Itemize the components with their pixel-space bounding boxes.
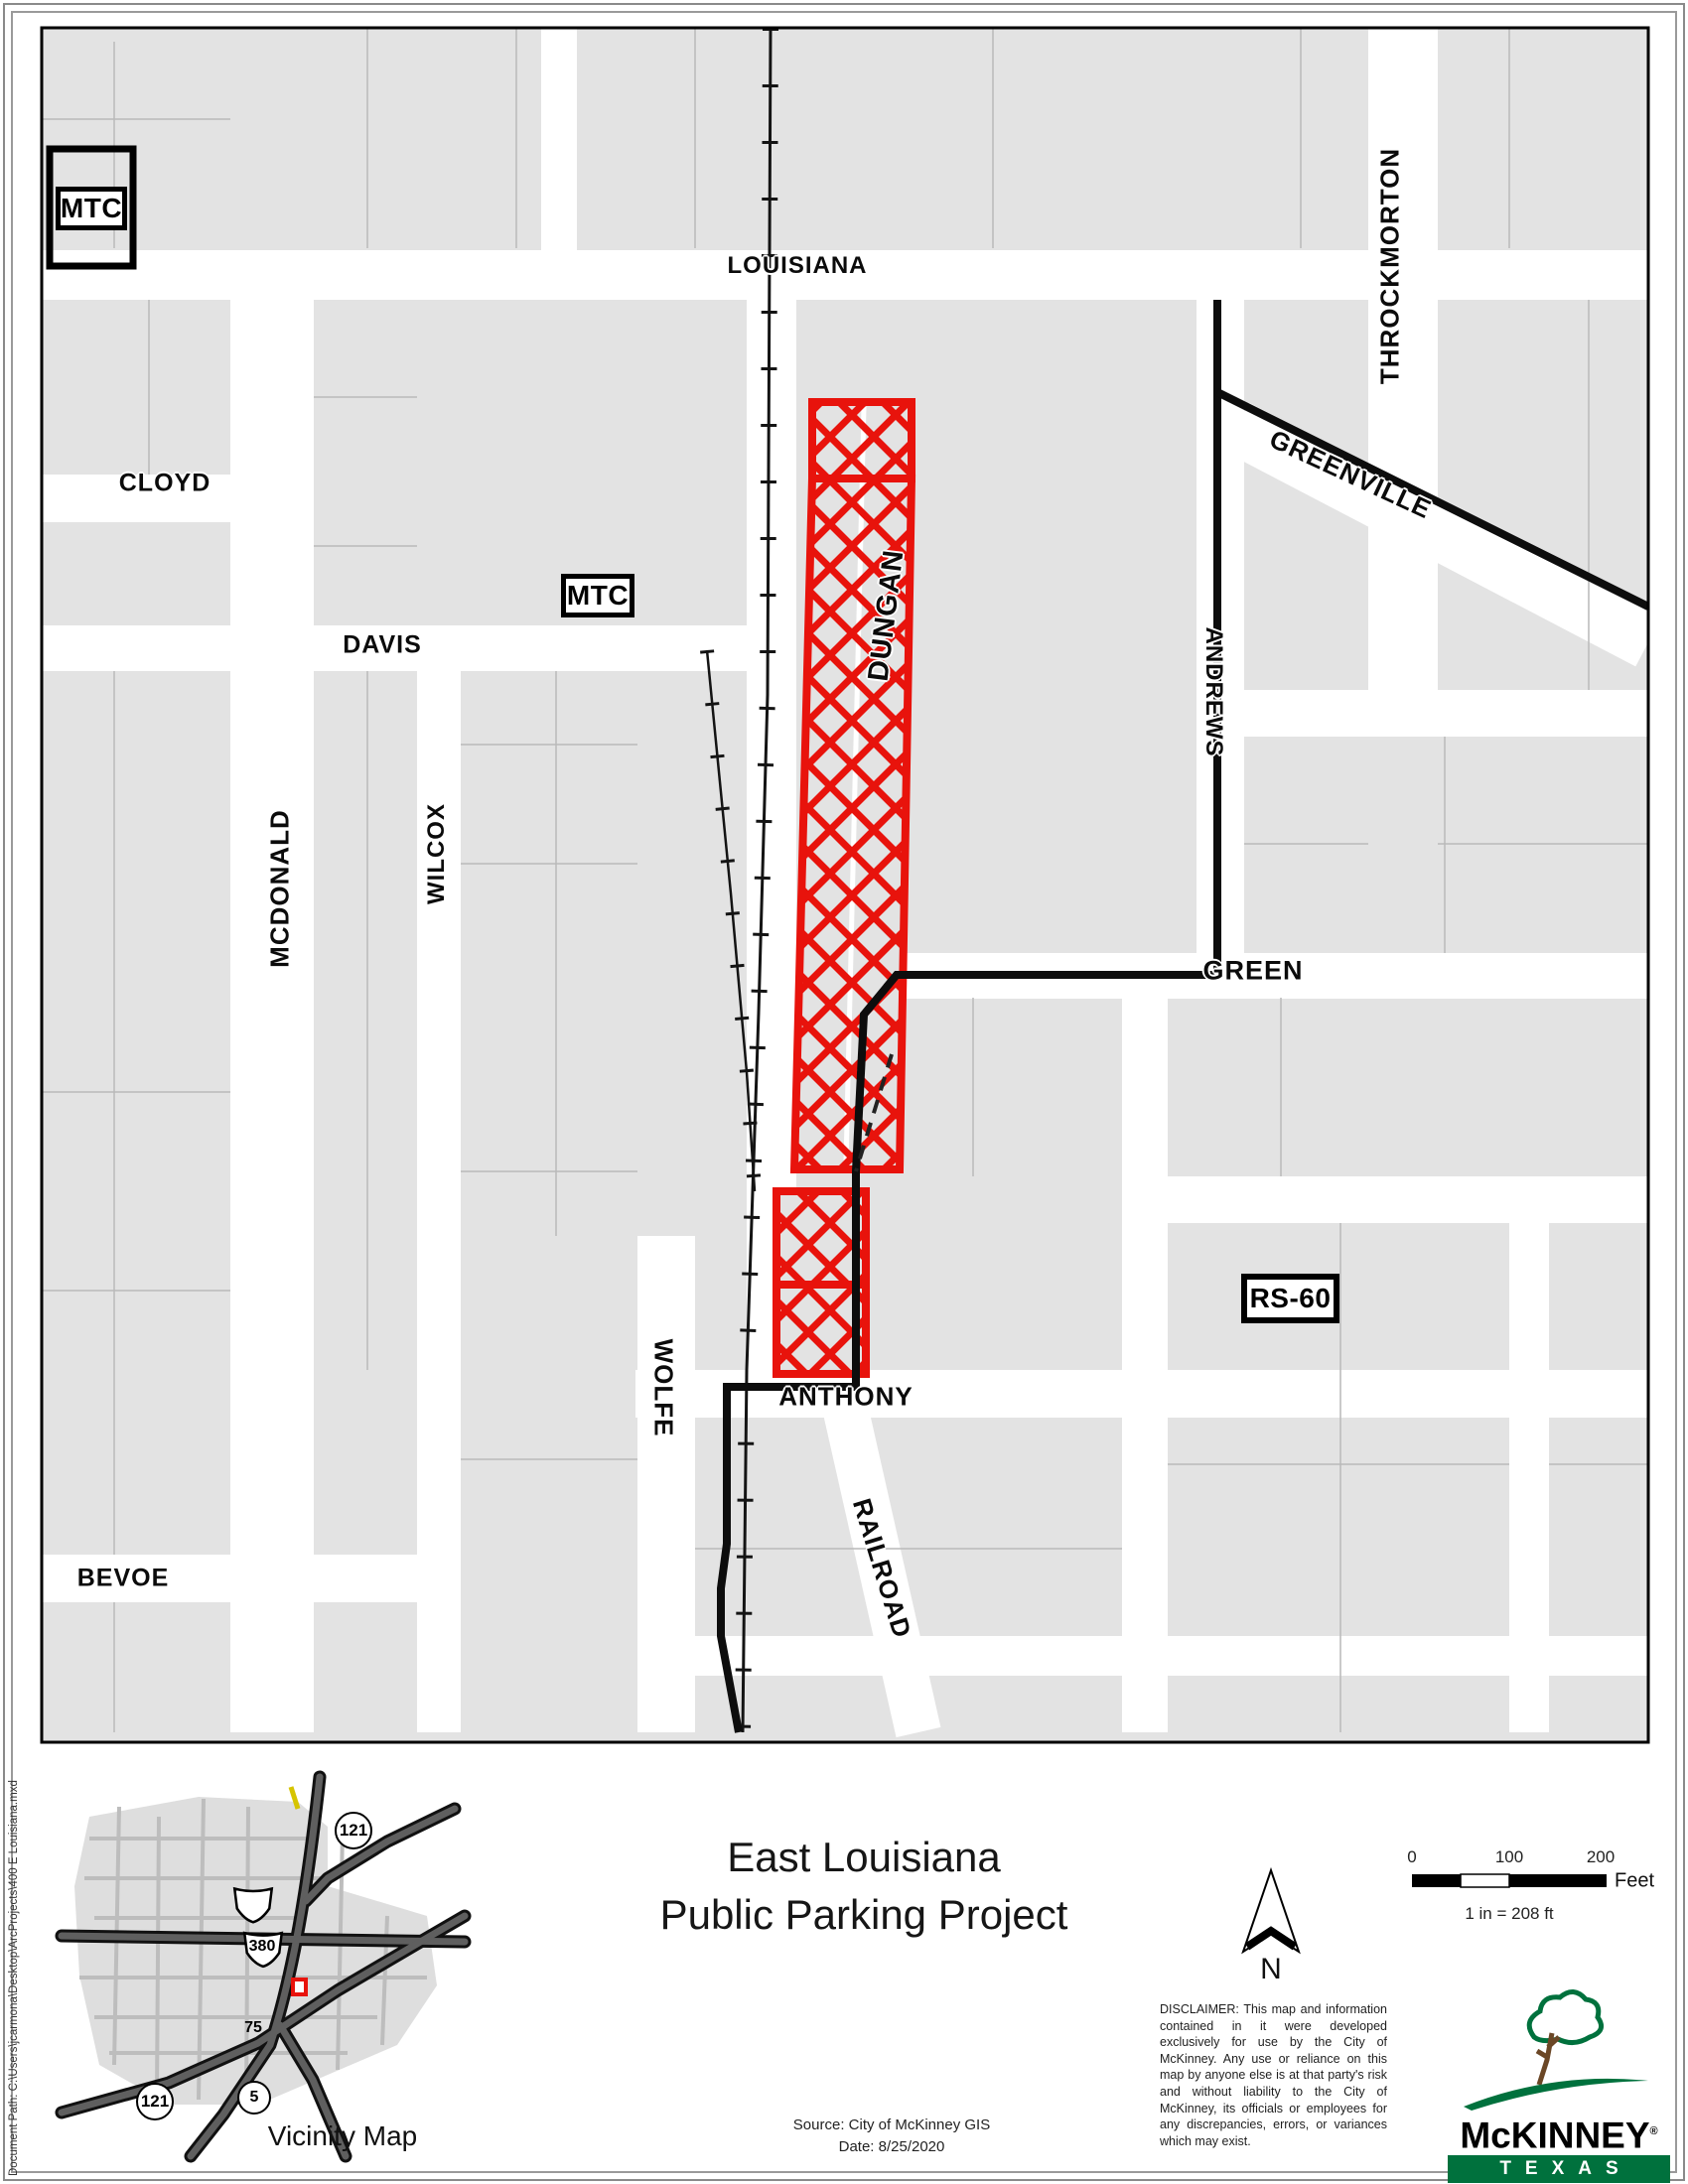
map-title: East Louisiana Public Parking Project: [660, 1829, 1068, 1944]
shield-121-ne-label: 121: [340, 1821, 367, 1841]
street-label-davis: DAVIS: [343, 631, 422, 660]
disclaimer-text: DISCLAIMER: This map and information con…: [1160, 2001, 1387, 2149]
shield-380-label: 380: [249, 1938, 276, 1956]
logo-tree-space: [1448, 1997, 1670, 2115]
map-title-line1: East Louisiana: [660, 1829, 1068, 1886]
scale-unit-label: Feet: [1615, 1870, 1654, 1893]
date-line: Date: 8/25/2020: [793, 2136, 990, 2158]
street-label-andrews: ANDREWS: [1199, 627, 1227, 757]
scale-tick-100: 100: [1495, 1847, 1523, 1867]
street-label-bevoe: BEVOE: [77, 1565, 170, 1593]
street-label-wolfe: WOLFE: [648, 1339, 679, 1437]
street-label-mcdonald: MCDONALD: [265, 809, 296, 968]
map-title-line2: Public Parking Project: [660, 1886, 1068, 1944]
street-label-louisiana: LOUISIANA: [728, 252, 868, 280]
document-path-text: Document Path: C:\Users\jcarmona\Desktop…: [8, 1780, 20, 2176]
street-label-throckmorton: THROCKMORTON: [1375, 148, 1406, 384]
zone-label-mtc-upper: MTC: [56, 187, 127, 230]
logo-city-name: McKINNEY®: [1448, 2115, 1670, 2152]
logo-city-text: McKINNEY: [1460, 2115, 1649, 2155]
shield-121-sw-label: 121: [141, 2092, 169, 2112]
street-label-anthony: ANTHONY: [778, 1382, 914, 1413]
north-arrow-icon: [1243, 1870, 1299, 1952]
scale-tick-200: 200: [1587, 1847, 1615, 1867]
vicinity-map: [62, 1777, 465, 2156]
scale-bar: [1412, 1874, 1607, 1887]
mckinney-logo: McKINNEY® TEXAS Unique by nature.: [1448, 1997, 1670, 2184]
scale-ratio-label: 1 in = 208 ft: [1465, 1904, 1553, 1924]
source-line: Source: City of McKinney GIS: [793, 2115, 990, 2136]
scale-tick-0: 0: [1407, 1847, 1416, 1867]
street-label-cloyd: CLOYD: [119, 470, 211, 498]
vicinity-red-marker: [293, 1979, 306, 1994]
vicinity-map-caption: Vicinity Map: [268, 2120, 417, 2152]
zone-label-rs60: RS-60: [1241, 1274, 1339, 1323]
north-arrow-label: N: [1260, 1953, 1282, 1986]
shield-5-label: 5: [250, 2089, 259, 2107]
shield-75-label: 75: [244, 2019, 262, 2037]
source-block: Source: City of McKinney GIS Date: 8/25/…: [793, 2115, 990, 2158]
logo-registered-mark: ®: [1650, 2125, 1658, 2137]
map-sheet: LOUISIANA CLOYD DAVIS MCDONALD WILCOX BE…: [0, 0, 1688, 2184]
zone-label-mtc-lower: MTC: [561, 574, 634, 617]
logo-state-band: TEXAS: [1448, 2155, 1670, 2183]
street-label-wilcox: WILCOX: [423, 803, 451, 904]
street-label-green: GREEN: [1202, 956, 1303, 987]
